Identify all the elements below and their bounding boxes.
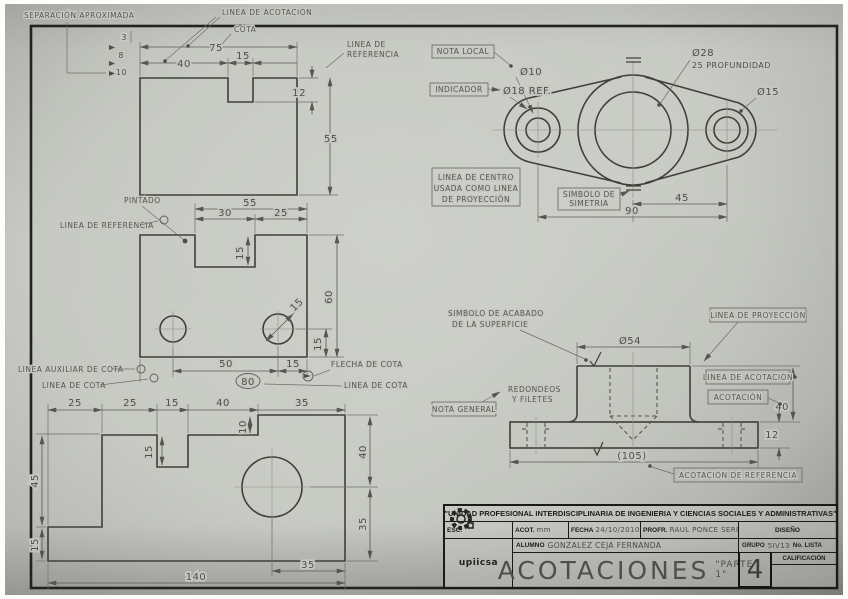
dia28-depth-note: 25 PROFUNDIDAD bbox=[692, 61, 771, 70]
linea-referencia-label-1: LINEA DE bbox=[347, 40, 386, 49]
dim-40-right-value: 40 bbox=[358, 445, 369, 459]
alumno-value: GONZALEZ CEJA FERNANDA bbox=[548, 541, 662, 550]
dim-80-value: 80 bbox=[241, 377, 255, 388]
dim-55-value: 55 bbox=[243, 198, 257, 209]
linea-centro-label-2: USADA COMO LINEA bbox=[434, 184, 519, 193]
dim-55: 55 bbox=[324, 78, 338, 195]
symmetry-mark-top bbox=[626, 58, 641, 62]
dim-notch-15: 15 bbox=[235, 237, 248, 265]
dia10-value: Ø10 bbox=[520, 66, 542, 78]
linea-referencia2-annotation: LINEA DE REFERENCIA bbox=[60, 216, 168, 230]
dim-15-value: 15 bbox=[236, 51, 250, 62]
title-block: "UNIDAD PROFESIONAL INTERDISCIPLINARIA D… bbox=[443, 504, 838, 589]
simbolo-simetria-label-2: SIMETRIA bbox=[569, 199, 609, 208]
dim-50-value: 50 bbox=[219, 359, 233, 370]
dim-notch-15-value: 15 bbox=[235, 246, 246, 260]
dia15-value: Ø15 bbox=[757, 86, 779, 98]
dim-dia15-diagonal: 15 bbox=[266, 296, 306, 341]
acot-value: mm bbox=[537, 526, 551, 534]
dim-90: 90 bbox=[538, 206, 727, 217]
linea-acotacion-label: LINEA DE ACOTACIÓN bbox=[222, 8, 312, 17]
linea-acotacion2-annotation: LINEA DE ACOTACIÓN bbox=[703, 370, 797, 384]
grupo-label: GRUPO bbox=[742, 542, 765, 549]
dim-45-value: 45 bbox=[675, 193, 689, 204]
dim-105-value: (105) bbox=[617, 451, 646, 462]
dia18-value: Ø18 REF. bbox=[503, 85, 551, 97]
fecha-value: 24/10/2010 bbox=[595, 526, 639, 534]
dim-10-value: 10 bbox=[238, 420, 249, 434]
title-block-row: ESC. ACOT. mm FECHA 24/10/2010 PROFR. RA… bbox=[445, 522, 836, 539]
linea-auxiliar-annotation: LINEA AUXILIAR DE COTA bbox=[18, 365, 145, 374]
view5-section-view: Ø54 40 12 (105) SIMBOLO DE ACABADO DE LA… bbox=[432, 308, 806, 482]
view2-front-view: 55 30 25 15 60 15 15 50 bbox=[18, 196, 408, 390]
indicador-label: INDICADOR bbox=[435, 85, 483, 94]
dim-75: 75 bbox=[140, 43, 297, 54]
cota-label: COTA bbox=[234, 25, 257, 34]
separacion-label: SEPARACIÓN APROXIMADA bbox=[24, 11, 135, 20]
fecha-label: FECHA bbox=[571, 527, 593, 534]
dim-55-total: 55 bbox=[195, 198, 307, 209]
dim-10-step: 10 bbox=[238, 417, 250, 434]
linea-acotacion2-label: LINEA DE ACOTACIÓN bbox=[703, 373, 793, 382]
dim-12: 12 bbox=[292, 66, 312, 114]
dim-90-value: 90 bbox=[625, 206, 639, 217]
dim-40-right: 40 bbox=[358, 417, 370, 485]
linea-cota-label: LINEA DE COTA bbox=[42, 381, 106, 390]
institution-header: "UNIDAD PROFESIONAL INTERDISCIPLINARIA D… bbox=[445, 506, 836, 522]
drawing-title-row: ACOTACIONES "PARTE 1" bbox=[513, 553, 738, 587]
linea-cota2-annotation: LINEA DE COTA bbox=[264, 381, 408, 390]
diseno-label: DISEÑO bbox=[775, 527, 800, 534]
dim-15-notch: 15 bbox=[144, 437, 162, 465]
grupo-value: 5IV13 bbox=[768, 542, 790, 550]
acot-cell: ACOT. mm bbox=[513, 522, 569, 538]
dim-dia54: Ø54 bbox=[577, 335, 690, 347]
dia18-note: Ø18 REF. bbox=[503, 85, 551, 109]
simbolo-simetria-label-1: SIMBOLO DE bbox=[563, 190, 615, 199]
nota-general-label: NOTA GENERAL bbox=[432, 405, 496, 414]
dim-dia54-value: Ø54 bbox=[619, 335, 641, 347]
dia28-value: Ø28 bbox=[692, 47, 714, 59]
dim-75-value: 75 bbox=[209, 43, 223, 54]
acotacion-ref-label: ACOTACIÓN DE REFERENCIA bbox=[679, 471, 797, 480]
lista-label: No. LISTA bbox=[793, 542, 822, 549]
dim-80-reference: 80 bbox=[236, 374, 260, 389]
dim-12-value: 12 bbox=[292, 88, 306, 99]
acotacion-label: ACOTACIÓN bbox=[714, 393, 763, 402]
dim-40-value: 40 bbox=[177, 59, 191, 70]
dim-15-top-value: 15 bbox=[165, 398, 179, 409]
simbolo-acabado-label-1: SIMBOLO DE ACABADO bbox=[448, 309, 544, 318]
upiicsa-gear-icon bbox=[445, 506, 479, 538]
sep-3: 3 bbox=[121, 33, 127, 42]
linea-referencia2-label: LINEA DE REFERENCIA bbox=[60, 221, 154, 230]
acot-label: ACOT. bbox=[515, 527, 535, 534]
linea-cota2-label: LINEA DE COTA bbox=[344, 381, 408, 390]
dim-row-top: 25 25 15 40 35 bbox=[48, 398, 345, 410]
nota-local-label: NOTA LOCAL bbox=[437, 47, 490, 56]
dia15-note: Ø15 bbox=[739, 86, 779, 113]
nota-general-annotation: NOTA GENERAL bbox=[432, 392, 500, 416]
dim-25a-value: 25 bbox=[68, 398, 82, 409]
dim-50: 50 bbox=[173, 359, 278, 371]
redondeos-annotation: REDONDEOS Y FILETES bbox=[508, 385, 567, 417]
dim-25b-value: 25 bbox=[123, 398, 137, 409]
dim-40-top-value: 40 bbox=[216, 398, 230, 409]
diseno-cell: DISEÑO bbox=[739, 522, 836, 538]
calificacion-empty bbox=[772, 565, 836, 587]
dim-25: 25 bbox=[255, 208, 307, 219]
dim-12-value: 12 bbox=[765, 430, 779, 441]
calificacion-label: CALIFICACIÓN bbox=[772, 553, 836, 565]
alumno-label: ALUMNO bbox=[516, 542, 545, 549]
acotacion-ref-annotation: ACOTACIÓN DE REFERENCIA bbox=[648, 464, 802, 482]
view4-top-view: 45 90 NOTA LOCAL Ø10 INDICADOR Ø18 REF. … bbox=[430, 45, 779, 222]
sep-8: 8 bbox=[118, 51, 124, 60]
linea-centro-label-3: DE PROYECCIÓN bbox=[442, 195, 510, 204]
nota-local-annotation: NOTA LOCAL bbox=[432, 45, 513, 68]
linea-referencia-label-2: REFERENCIA bbox=[347, 50, 400, 59]
sheet-number: 4 bbox=[738, 552, 772, 588]
simbolo-acabado-annotation: SIMBOLO DE ACABADO DE LA SUPERFICIE bbox=[448, 309, 588, 362]
view1-front-view: 75 40 15 12 55 SEPARACIÓN APROXIMADA bbox=[24, 8, 400, 195]
dim-55-value: 55 bbox=[324, 134, 338, 145]
dim-15-right: 15 bbox=[313, 329, 326, 357]
linea-centro-annotation: LINEA DE CENTRO USADA COMO LINEA DE PROY… bbox=[432, 168, 520, 206]
alumno-row: ALUMNO GONZALEZ CEJA FERNANDA bbox=[513, 539, 738, 553]
dim-35-bottom-value: 35 bbox=[301, 560, 315, 571]
linea-auxiliar-label: LINEA AUXILIAR DE COTA bbox=[18, 365, 124, 374]
linea-cota-annotation: LINEA DE COTA bbox=[42, 374, 158, 390]
dim-45: 45 bbox=[633, 193, 727, 204]
cota-annotation: COTA bbox=[222, 25, 257, 44]
logo-text: upiicsa bbox=[459, 558, 498, 568]
dim-dia15-value: 15 bbox=[288, 296, 305, 313]
dim-40-height-value: 40 bbox=[775, 402, 789, 413]
dim-15-bottom-value: 15 bbox=[286, 359, 300, 370]
dim-25-value: 25 bbox=[274, 208, 288, 219]
profr-cell: PROFR. RAUL PONCE SERRIN bbox=[641, 522, 739, 538]
symmetry-mark-bottom bbox=[626, 186, 641, 190]
dim-12-thickness: 12 bbox=[765, 410, 779, 460]
dim-15-left-value: 15 bbox=[30, 538, 41, 552]
linea-referencia-annotation: LINEA DE REFERENCIA bbox=[326, 40, 400, 68]
profr-value: RAUL PONCE SERRIN bbox=[670, 526, 739, 534]
dim-45-left-value: 45 bbox=[30, 474, 41, 488]
surface-finish-icon bbox=[590, 352, 601, 366]
profr-label: PROFR. bbox=[643, 527, 668, 534]
dim-40: 40 bbox=[140, 59, 228, 70]
drawing-title: ACOTACIONES bbox=[498, 556, 710, 585]
linea-proyeccion-annotation: LINEA DE PROYECCIÓN bbox=[704, 308, 806, 361]
dim-140-value: 140 bbox=[186, 572, 207, 583]
calificacion-cell: CALIFICACIÓN bbox=[772, 553, 836, 587]
flange-base bbox=[510, 422, 758, 448]
dim-30: 30 bbox=[195, 208, 255, 219]
pintado-annotation: PINTADO bbox=[124, 196, 187, 243]
dim-15-notch-value: 15 bbox=[144, 445, 155, 459]
dim-35-right: 35 bbox=[358, 489, 370, 559]
linea-proyeccion-label: LINEA DE PROYECCIÓN bbox=[710, 311, 805, 320]
dim-105-reference: (105) bbox=[510, 451, 758, 462]
redondeos-label-2: Y FILETES bbox=[511, 395, 553, 404]
dim-15-right-value: 15 bbox=[313, 337, 324, 351]
redondeos-label-1: REDONDEOS bbox=[508, 385, 561, 394]
view3-front-view: 25 25 15 40 35 10 15 45 15 40 35 bbox=[30, 398, 378, 589]
dim-15: 15 bbox=[228, 51, 297, 63]
indicador-annotation: INDICADOR bbox=[430, 83, 500, 96]
dia28-note: Ø28 25 PROFUNDIDAD bbox=[657, 47, 771, 107]
dim-15-bottom: 15 bbox=[278, 359, 307, 371]
flecha-cota-label: FLECHA DE COTA bbox=[331, 360, 403, 369]
dim-35-top-value: 35 bbox=[295, 398, 309, 409]
dim-35-right-value: 35 bbox=[358, 517, 369, 531]
linea-centro-label-1: LINEA DE CENTRO bbox=[438, 173, 514, 182]
fecha-cell: FECHA 24/10/2010 bbox=[569, 522, 641, 538]
simbolo-simetria-annotation: SIMBOLO DE SIMETRIA bbox=[558, 188, 629, 210]
dim-60-value: 60 bbox=[324, 290, 335, 304]
scanned-drawing-sheet: 75 40 15 12 55 SEPARACIÓN APROXIMADA bbox=[0, 0, 848, 599]
flecha-cota-annotation: FLECHA DE COTA bbox=[303, 360, 403, 381]
pintado-label: PINTADO bbox=[124, 196, 161, 205]
acotacion-annotation: ACOTACIÓN bbox=[708, 390, 782, 406]
dim-30-value: 30 bbox=[218, 208, 232, 219]
grupo-row: GRUPO 5IV13 No. LISTA bbox=[739, 539, 836, 553]
separation-annotation: SEPARACIÓN APROXIMADA 3 8 10 bbox=[24, 11, 135, 77]
sep-10: 10 bbox=[116, 68, 127, 77]
dim-140: 140 bbox=[48, 572, 345, 583]
simbolo-acabado-label-2: DE LA SUPERFICIE bbox=[452, 320, 528, 329]
